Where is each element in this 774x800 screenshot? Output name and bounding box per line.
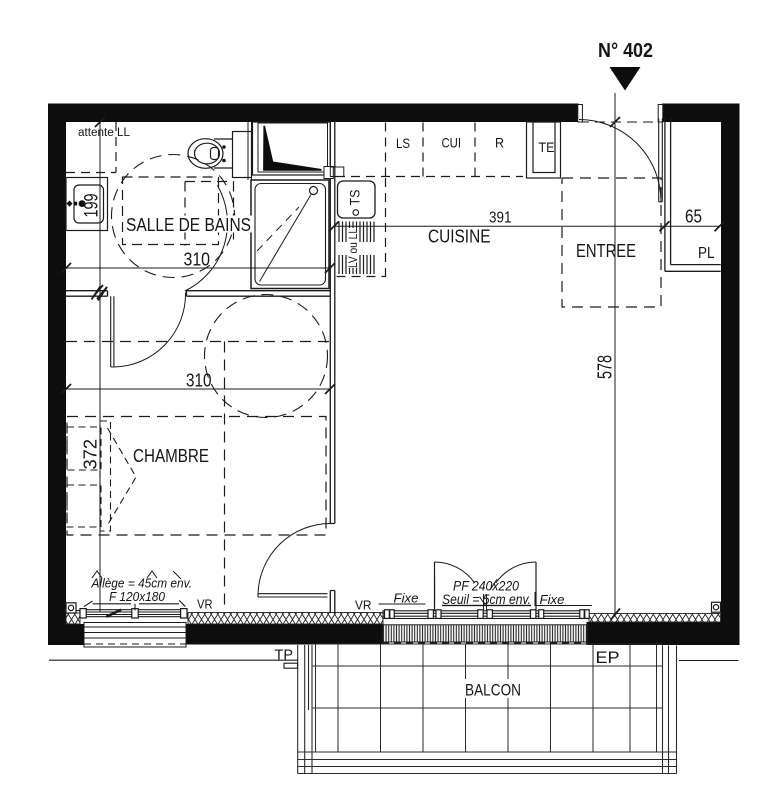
svg-text:65: 65 bbox=[685, 207, 702, 227]
svg-text:R: R bbox=[495, 135, 504, 151]
svg-text:F 120x180: F 120x180 bbox=[109, 589, 166, 604]
svg-text:310: 310 bbox=[184, 249, 211, 270]
svg-text:N° 402: N° 402 bbox=[598, 40, 653, 62]
svg-text:578: 578 bbox=[595, 355, 617, 379]
svg-text:VR: VR bbox=[197, 597, 213, 612]
svg-text:391: 391 bbox=[489, 210, 512, 227]
svg-text:PL: PL bbox=[698, 245, 715, 262]
svg-text:ENTREE: ENTREE bbox=[576, 241, 636, 261]
svg-text:attente LL: attente LL bbox=[78, 127, 131, 139]
svg-text:CUISINE: CUISINE bbox=[428, 226, 491, 246]
svg-text:SALLE DE BAINS: SALLE DE BAINS bbox=[126, 215, 251, 235]
svg-text:310: 310 bbox=[186, 370, 212, 391]
svg-text:BALCON: BALCON bbox=[465, 681, 521, 700]
svg-text:TS: TS bbox=[347, 190, 363, 206]
svg-text:LV ou LL: LV ou LL bbox=[348, 227, 360, 268]
svg-text:VR: VR bbox=[355, 598, 372, 613]
svg-text:Fixe: Fixe bbox=[540, 592, 565, 607]
svg-text:199: 199 bbox=[82, 194, 103, 218]
svg-text:372: 372 bbox=[80, 439, 101, 470]
svg-text:LS: LS bbox=[396, 135, 410, 151]
svg-text:TP: TP bbox=[275, 646, 294, 663]
svg-text:TE: TE bbox=[539, 139, 555, 155]
svg-text:EP: EP bbox=[596, 649, 620, 667]
svg-text:CUI: CUI bbox=[442, 135, 462, 151]
svg-text:CHAMBRE: CHAMBRE bbox=[133, 446, 209, 466]
svg-text:Fixe: Fixe bbox=[394, 591, 419, 606]
